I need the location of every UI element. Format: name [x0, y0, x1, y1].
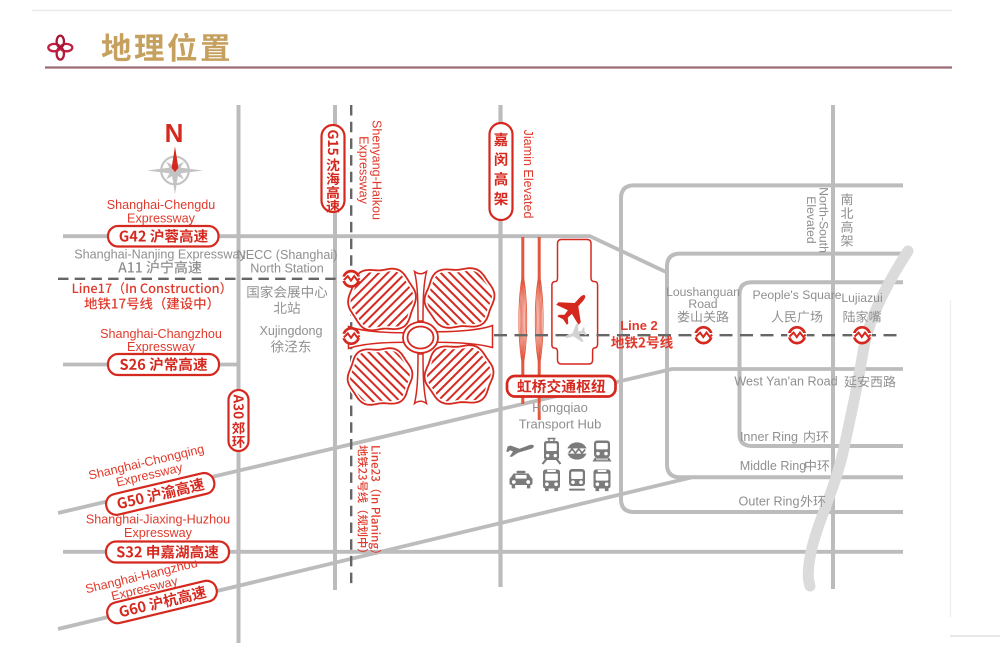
svg-text:N: N [165, 118, 184, 148]
svg-text:Elevated: Elevated [804, 196, 818, 243]
svg-text:Shanghai-Changzhou: Shanghai-Changzhou [100, 327, 222, 341]
svg-text:North Station: North Station [250, 262, 324, 276]
svg-text:Shanghai-Jiaxing-Huzhou: Shanghai-Jiaxing-Huzhou [86, 513, 230, 527]
svg-text:NECC (Shanghai): NECC (Shanghai) [237, 248, 338, 262]
svg-text:Inner Ring: Inner Ring [740, 430, 798, 444]
svg-text:Road: Road [688, 297, 717, 311]
svg-text:Middle Ring: Middle Ring [740, 459, 807, 473]
svg-text:Outer Ring: Outer Ring [739, 495, 800, 509]
svg-text:Lujiazui: Lujiazui [841, 291, 882, 305]
svg-text:West Yan'an Road: West Yan'an Road [734, 375, 837, 389]
svg-text:Shanghai-Chengdu: Shanghai-Chengdu [107, 198, 216, 212]
svg-text:Shanghai-Nanjing Expressway: Shanghai-Nanjing Expressway [74, 248, 246, 262]
svg-text:Expressway: Expressway [124, 526, 193, 540]
svg-text:Transport Hub: Transport Hub [519, 417, 602, 432]
svg-text:Expressway: Expressway [127, 212, 196, 226]
svg-text:Hongqiao: Hongqiao [532, 400, 588, 415]
svg-text:Xujingdong: Xujingdong [259, 324, 322, 338]
svg-text:People's Square: People's Square [752, 288, 841, 302]
svg-text:Expressway: Expressway [357, 136, 371, 205]
svg-text:Line 2: Line 2 [620, 318, 658, 333]
svg-text:Jiamin Elevated: Jiamin Elevated [521, 130, 535, 219]
svg-text:Expressway: Expressway [127, 340, 196, 354]
svg-text:Shenyang-Haikou: Shenyang-Haikou [370, 120, 384, 220]
